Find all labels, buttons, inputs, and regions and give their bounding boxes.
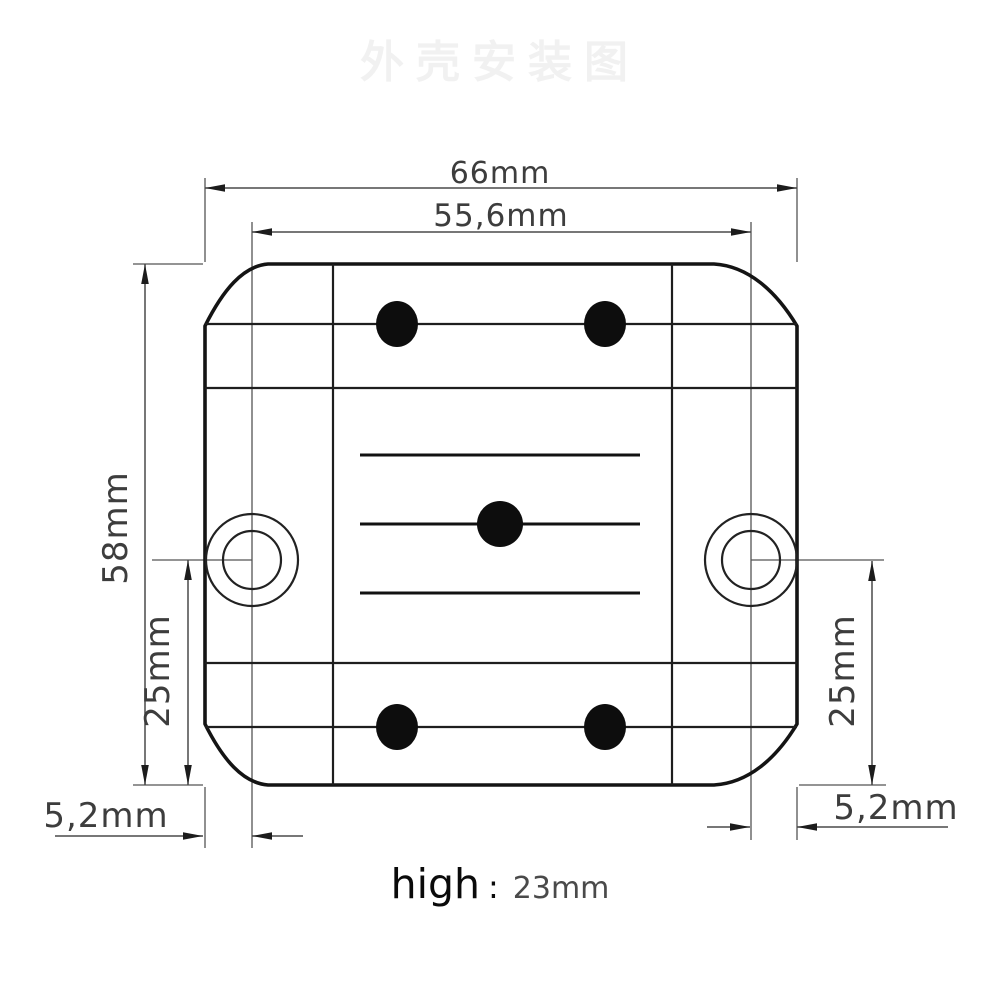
dim-label-5-2mm-left: 5,2mm [43, 796, 168, 836]
screw-bottom-right [584, 704, 626, 750]
screw-top-right [584, 301, 626, 347]
dim-label-25mm-left: 25mm [138, 614, 178, 728]
screw-center [477, 501, 523, 547]
height-note-label: high [391, 860, 480, 908]
enclosure-installation-drawing: 外壳安装图 [0, 0, 1000, 1000]
height-note-separator: : [488, 868, 499, 906]
dim-label-55-6mm: 55,6mm [433, 198, 568, 234]
screw-bottom-left [376, 704, 418, 750]
dim-label-58mm: 58mm [96, 471, 136, 585]
dim-label-66mm: 66mm [450, 156, 551, 191]
dimension-drawing-canvas: 66mm 55,6mm 58mm 25mm 25mm 5,2mm 5,2mm [0, 0, 1000, 1000]
height-note: high : 23mm [0, 860, 1000, 908]
height-note-value: 23mm [513, 871, 610, 906]
dim-label-25mm-right: 25mm [823, 614, 863, 728]
dim-label-5-2mm-right: 5,2mm [833, 788, 958, 828]
screw-top-left [376, 301, 418, 347]
